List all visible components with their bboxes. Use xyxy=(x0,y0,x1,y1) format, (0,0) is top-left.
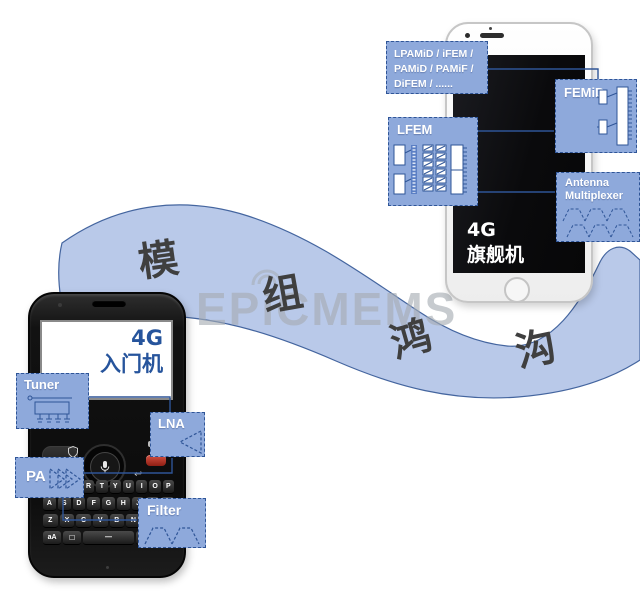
lfem-label: LFEM xyxy=(397,122,432,137)
front-camera-dot xyxy=(58,303,62,307)
filter-label: Filter xyxy=(147,502,181,518)
lna-amplifier-icon xyxy=(175,429,203,455)
key-R: R xyxy=(83,480,94,494)
tag-femid: FEMiD xyxy=(555,79,637,153)
pa-amplifier-icon xyxy=(48,466,84,492)
tag-module-list: LPAMiD / iFEM / PAMiD / PAMiF / DiFEM / … xyxy=(386,41,488,94)
microphone-icon xyxy=(100,460,110,474)
mic-button xyxy=(90,452,120,482)
key-P: P xyxy=(163,480,174,494)
multiplexer-filters-icon xyxy=(562,207,636,239)
tag-antenna-multiplexer: Antenna Multiplexer xyxy=(556,172,640,242)
key-G: G xyxy=(102,497,115,511)
entry-screen-line1: 4G xyxy=(42,325,163,351)
key-B: B xyxy=(110,514,125,528)
filter-response-icon xyxy=(144,524,202,546)
diagram-canvas: EPiCMEMS 模 组 鸿 沟 4G 入门机 ↩ Q xyxy=(0,0,640,591)
banner-char-2: 组 xyxy=(257,259,306,323)
banner-char-4: 沟 xyxy=(509,313,560,378)
antenna-multiplexer-label-line1: Antenna xyxy=(565,177,609,189)
earpiece-speaker xyxy=(92,300,126,307)
key-Z: Z xyxy=(43,514,58,528)
key-S: S xyxy=(58,497,71,511)
tag-filter: Filter xyxy=(138,498,206,548)
module-list-line2: PAMiD / PAMiF / xyxy=(394,62,480,77)
tag-lna: LNA xyxy=(150,412,205,457)
module-list-line3: DiFEM / ...... xyxy=(394,77,480,92)
key-V: V xyxy=(93,514,108,528)
earpiece-speaker xyxy=(480,33,504,38)
tuner-schematic-icon xyxy=(25,394,77,426)
key-X: X xyxy=(60,514,75,528)
key-A: A xyxy=(43,497,56,511)
femid-schematic-icon xyxy=(597,85,633,149)
module-list-line1: LPAMiD / iFEM / xyxy=(394,47,480,62)
key-D: D xyxy=(73,497,86,511)
key-H: H xyxy=(117,497,130,511)
tag-lfem: LFEM xyxy=(388,117,478,206)
back-arrow-icon: ↩ xyxy=(134,470,142,480)
tag-tuner: Tuner xyxy=(16,373,89,429)
key-F: F xyxy=(87,497,100,511)
key-C: C xyxy=(76,514,91,528)
key-aA: aA xyxy=(43,531,61,545)
pa-label: PA xyxy=(26,468,46,485)
key-O: O xyxy=(149,480,160,494)
key-I: I xyxy=(136,480,147,494)
flagship-screen-line2: 旗舰机 xyxy=(467,243,524,268)
key-T: T xyxy=(96,480,107,494)
home-button xyxy=(504,277,530,303)
flagship-screen-line1: 4G xyxy=(467,218,524,243)
key-Y: Y xyxy=(110,480,121,494)
tag-pa: PA xyxy=(15,457,84,498)
lfem-schematic-icon xyxy=(393,142,473,200)
key-space: — xyxy=(83,531,134,545)
proximity-sensor-dot xyxy=(489,27,492,30)
antenna-multiplexer-label-line2: Multiplexer xyxy=(565,190,623,202)
tuner-label: Tuner xyxy=(24,377,59,392)
banner-char-1: 模 xyxy=(134,225,182,288)
front-camera-dot xyxy=(465,33,470,38)
bottom-mic-dot xyxy=(106,566,109,569)
key-U: U xyxy=(123,480,134,494)
key-☐: ☐ xyxy=(63,531,81,545)
